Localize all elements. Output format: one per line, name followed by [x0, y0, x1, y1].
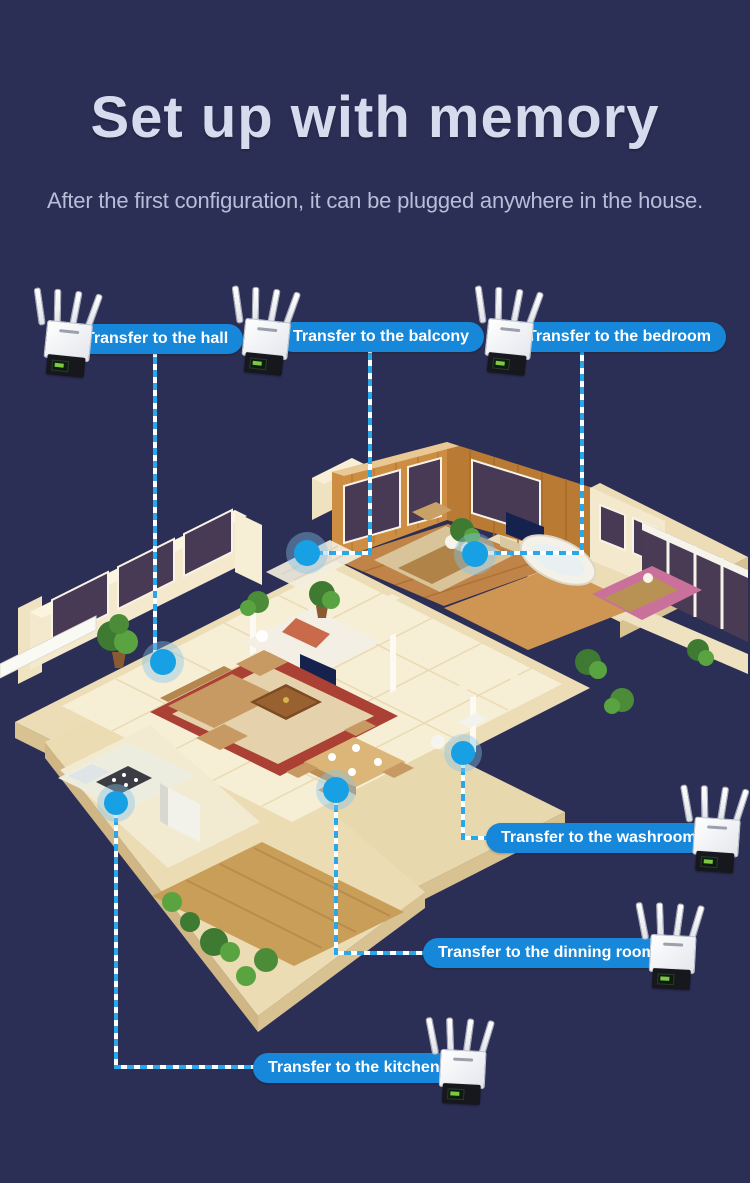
- wifi-repeater-device-dinning-room: [638, 901, 707, 992]
- callout-pill-washroom: Transfer to the washroom: [486, 823, 712, 853]
- floorplan-illustration: [0, 0, 750, 1183]
- wifi-repeater-device-hall: [32, 287, 105, 381]
- repeater-display: [249, 357, 267, 370]
- display-digits: [660, 976, 669, 980]
- display-digits: [704, 859, 713, 864]
- brand-logo-bar: [59, 329, 79, 334]
- wifi-repeater-device-bedroom: [473, 285, 546, 379]
- wifi-repeater-device-balcony: [230, 285, 303, 379]
- callout-pill-kitchen: Transfer to the kitchen: [253, 1053, 455, 1083]
- display-digits: [496, 361, 505, 366]
- brand-logo-bar: [257, 327, 277, 332]
- display-digits: [253, 361, 262, 366]
- location-dot-kitchen: [97, 784, 135, 822]
- brand-logo-bar: [500, 327, 520, 332]
- repeater-display: [492, 357, 510, 370]
- repeater-display: [657, 973, 675, 985]
- brand-logo-bar: [663, 943, 683, 947]
- location-dot-hall: [142, 641, 184, 683]
- location-dot-balcony: [286, 532, 328, 574]
- repeater-plug-base: [244, 352, 284, 376]
- repeater-display: [700, 856, 718, 868]
- location-dot-washroom: [444, 734, 482, 772]
- wifi-repeater-device-washroom: [681, 784, 750, 876]
- promo-page: Set up with memory After the first confi…: [0, 0, 750, 1183]
- callout-pill-balcony: Transfer to the balcony: [278, 322, 484, 352]
- repeater-plug-base: [46, 354, 86, 378]
- repeater-plug-base: [652, 968, 691, 990]
- callout-pill-bedroom: Transfer to the bedroom: [512, 322, 726, 352]
- display-digits: [55, 363, 64, 368]
- brand-logo-bar: [707, 825, 727, 829]
- repeater-plug-base: [695, 851, 734, 874]
- display-digits: [450, 1091, 459, 1095]
- repeater-plug-base: [487, 352, 527, 376]
- callout-pill-dinning-room: Transfer to the dinning room: [423, 938, 671, 968]
- repeater-display: [447, 1088, 465, 1100]
- repeater-display: [51, 359, 69, 372]
- repeater-plug-base: [442, 1083, 481, 1105]
- location-dot-bedroom: [454, 533, 496, 575]
- wifi-repeater-device-kitchen: [428, 1016, 497, 1107]
- brand-logo-bar: [453, 1058, 473, 1062]
- location-dot-dinning-room: [316, 770, 356, 810]
